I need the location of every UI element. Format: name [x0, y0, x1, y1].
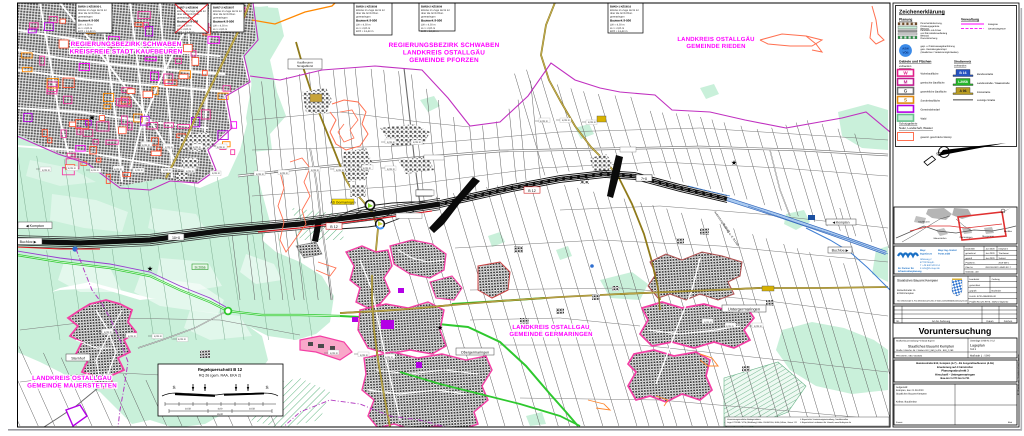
svg-text:S: S: [172, 385, 175, 390]
svg-text:und Fahrstreifenaufteilung: und Fahrstreifenaufteilung: [921, 32, 948, 35]
svg-text:M: M: [904, 80, 908, 85]
svg-text:4,06 m: 4,06 m: [360, 354, 368, 357]
svg-text:geprüft: geprüft: [970, 289, 977, 292]
svg-text:Format: Format: [896, 421, 903, 424]
svg-text:4,06 m: 4,06 m: [217, 146, 225, 149]
svg-text:4,06 m: 4,06 m: [754, 325, 762, 328]
svg-text:RQ 26 (gem. RAA, EKA 2): RQ 26 (gem. RAA, EKA 2): [199, 374, 241, 378]
svg-text:AS Germaringen: AS Germaringen: [330, 201, 355, 205]
svg-text:Wald: Wald: [921, 117, 927, 120]
svg-text:© Bayerisches Landesamt für Um: © Bayerisches Landesamt für Umwelt, www.…: [800, 421, 852, 424]
svg-text:St 2056: St 2056: [195, 265, 206, 269]
svg-text:4,06 m: 4,06 m: [142, 144, 150, 147]
svg-text:Kaufbeuren: Kaufbeuren: [918, 220, 930, 223]
svg-text:Nachtrder: Nachtrder: [992, 289, 1002, 292]
svg-text:Gemeindegrenze: Gemeindegrenze: [988, 28, 1006, 31]
svg-text:4,06 m: 4,06 m: [311, 169, 319, 172]
svg-text:4,06 m: 4,06 m: [704, 321, 712, 324]
svg-text:Bundesstraße B12, Kempten (A 7: Bundesstraße B12, Kempten (A 7) - AS Jen…: [916, 362, 994, 365]
svg-text:gewerbliche Baufläche: gewerbliche Baufläche: [921, 90, 948, 93]
svg-text:LANDKREIS OSTALLGAU: LANDKREIS OSTALLGAU: [512, 324, 589, 331]
svg-text:Erhebungsgerüste: Erhebungsgerüste: [921, 25, 940, 28]
svg-text:Unterlage 1946-N: 0 12: Unterlage 1946-N: 0 12: [970, 340, 996, 343]
svg-text:4,06 m: 4,06 m: [387, 141, 395, 144]
svg-text:A 96: A 96: [959, 89, 966, 93]
svg-text:4,06 m: 4,06 m: [413, 141, 421, 144]
svg-text:Teil 2: Teil 2: [970, 348, 977, 351]
svg-text:Obergermar.: Obergermar.: [982, 235, 995, 238]
svg-text:Kellner, Baudirektor: Kellner, Baudirektor: [896, 401, 917, 404]
svg-text:Maßstab 1 : 5000: Maßstab 1 : 5000: [970, 354, 991, 357]
svg-text:Bau-km 0+070 bis 9+721: Bau-km 0+070 bis 9+721: [941, 377, 971, 380]
svg-text:Juni 2020: Juni 2020: [986, 257, 996, 260]
svg-text:gepl. u. Erlebnisswegüberführu: gepl. u. Erlebnisswegüberführung: [921, 45, 956, 48]
svg-text:gesetzl. geschützter Biotop: gesetzl. geschützter Biotop: [921, 136, 953, 139]
svg-text:© Bayerische Vermessungsverwal: © Bayerische Vermessungsverwaltung, Nach…: [800, 418, 848, 421]
svg-text:S: S: [904, 98, 907, 103]
svg-text:gemischte Baufläche: gemischte Baufläche: [921, 81, 946, 84]
svg-text:Fahrbahn mit Achse: Fahrbahn mit Achse: [921, 29, 942, 32]
svg-text:Staatliches Bauamt Kempten: Staatliches Bauamt Kempten: [897, 279, 938, 283]
svg-text:Einschnittsböschung,: Einschnittsböschung,: [921, 22, 943, 25]
svg-text:Straßenbauverwaltung Freistaat: Straßenbauverwaltung Freistaat Bayern: [896, 340, 935, 343]
svg-text:E info@ib-mayr.de: E info@ib-mayr.de: [920, 267, 940, 270]
svg-text:Lageplan: Lageplan: [970, 344, 985, 348]
svg-text:Nr.: Nr.: [896, 320, 899, 323]
svg-text:2019-009-1: 2019-009-1: [999, 261, 1010, 264]
svg-text:4,06 m: 4,06 m: [726, 325, 734, 328]
svg-text:Wohnbaufläche: Wohnbaufläche: [921, 72, 940, 75]
svg-text:Art der Änderung: Art der Änderung: [932, 320, 951, 323]
svg-text:VÖB: VÖB: [902, 51, 908, 55]
svg-text:4,06 m: 4,06 m: [540, 120, 548, 123]
svg-text:★: ★: [89, 114, 95, 122]
svg-text:Dammböschung: Dammböschung: [921, 37, 938, 40]
svg-text:Straßennetz: Straßennetz: [954, 60, 972, 64]
svg-text:B 12: B 12: [330, 225, 337, 229]
svg-text:4,06 m: 4,06 m: [154, 335, 162, 338]
svg-text:4,06 m: 4,06 m: [387, 168, 395, 171]
svg-text:Landesstraße / Staatsstraße: Landesstraße / Staatsstraße: [977, 82, 1010, 85]
svg-text:Natur, Landschaft, Wasser: Natur, Landschaft, Wasser: [899, 126, 933, 130]
svg-text:Neugablonz: Neugablonz: [297, 64, 314, 68]
svg-text:GEMEINDE GERMARINGEN: GEMEINDE GERMARINGEN: [509, 331, 592, 338]
svg-text:10,50: 10,50: [249, 408, 256, 411]
svg-text:vorhanden: vorhanden: [899, 65, 912, 68]
svg-text:G: G: [904, 89, 908, 94]
svg-text:Buchloe: Buchloe: [1004, 230, 1013, 233]
svg-text:L2058: L2058: [958, 80, 968, 84]
svg-text:10+0: 10+0: [172, 236, 180, 240]
svg-text:Tel. 0831/52143-0, Fax 0831/52: Tel. 0831/52143-0, Fax 0831/52143-1205, …: [897, 300, 968, 303]
svg-text:Diegmann: Diegmann: [999, 248, 1009, 251]
svg-text:Bauwerk 9-506: Bauwerk 9-506: [610, 19, 631, 23]
svg-text:Gebiete und Flächen: Gebiete und Flächen: [899, 60, 931, 64]
svg-text:Untergermaringen: Untergermaringen: [728, 306, 760, 311]
svg-text:bearbeitet: bearbeitet: [970, 278, 980, 281]
svg-text:4,06 m: 4,06 m: [135, 169, 143, 172]
svg-text:REGIERUNGSBEZIRK SCHWABEN: REGIERUNGSBEZIRK SCHWABEN: [389, 42, 500, 49]
svg-text:Buchloe ▶: Buchloe ▶: [832, 249, 849, 253]
svg-text:KREISFREIE STADT KAUFBEUREN: KREISFREIE STADT KAUFBEUREN: [70, 49, 183, 56]
svg-text:Germaringen: Germaringen: [960, 236, 974, 239]
svg-text:BrCl = 13,43 m: BrCl = 13,43 m: [78, 30, 95, 33]
svg-text:10,50: 10,50: [185, 408, 192, 411]
svg-text:Staatliches Bauamt Kempten: Staatliches Bauamt Kempten: [908, 345, 954, 349]
svg-text:4,06 m: 4,06 m: [68, 167, 76, 170]
svg-text:B 16: B 16: [959, 71, 966, 75]
svg-text:4,06 m: 4,06 m: [363, 167, 371, 170]
svg-text:gezeichnet: gezeichnet: [966, 252, 976, 255]
svg-text:Mauerstetten: Mauerstetten: [934, 237, 948, 240]
svg-text:4,06 m: 4,06 m: [128, 335, 136, 338]
svg-text:Staatliches Bauamt Kempten: Staatliches Bauamt Kempten: [896, 392, 928, 395]
svg-text:4,06 m: 4,06 m: [114, 168, 122, 171]
svg-text:4,06 m: 4,06 m: [385, 356, 393, 359]
svg-text:GEMEINDE MAUERSTETTEN: GEMEINDE MAUERSTETTEN: [27, 382, 117, 389]
svg-text:7+0: 7+0: [641, 177, 647, 181]
svg-text:Kreisstraße: Kreisstraße: [977, 91, 991, 94]
svg-text:Partn.mbB: Partn.mbB: [938, 253, 950, 256]
svg-text:Schutzgebiete: Schutzgebiete: [899, 122, 918, 126]
svg-text:4,06 m: 4,06 m: [336, 169, 344, 172]
svg-text:Verwaltung: Verwaltung: [961, 18, 979, 22]
svg-text:Plan-Nr.: Plan-Nr.: [966, 266, 974, 269]
svg-text:Kategorie: Kategorie: [988, 23, 999, 26]
svg-text:Gemeindebedarf: Gemeindebedarf: [921, 108, 941, 111]
svg-text:Datum: Datum: [986, 320, 993, 323]
svg-text:gezeichnet: gezeichnet: [970, 284, 981, 287]
svg-text:Juni 2020: Juni 2020: [986, 252, 996, 255]
svg-text:4,06 m: 4,06 m: [178, 338, 186, 341]
svg-text:GEMEINDE RIEDEN: GEMEINDE RIEDEN: [686, 43, 745, 50]
svg-text:Bauwerk 9-506: Bauwerk 9-506: [78, 19, 99, 23]
svg-text:Bauwerk 9-506: Bauwerk 9-506: [356, 19, 377, 23]
svg-text:BrCl = 13,43 m: BrCl = 13,43 m: [177, 31, 194, 34]
svg-text:bearbeitet: bearbeitet: [966, 248, 976, 251]
svg-text:4,06 m: 4,06 m: [91, 169, 99, 172]
svg-text:Zeichen: Zeichen: [1004, 320, 1013, 323]
svg-text:Bundesstraße: Bundesstraße: [977, 73, 994, 76]
svg-text:Lage: ETRS89 / UTM (Abbildung): Lage: ETRS89 / UTM (Abbildung) Höhe: DHH…: [727, 421, 798, 424]
svg-text:Schmid: Schmid: [999, 257, 1007, 260]
svg-text:4,06 m: 4,06 m: [562, 119, 570, 122]
svg-text:BrCl = 13,43 m: BrCl = 13,43 m: [421, 30, 438, 33]
svg-text:Regelquerschnitt B 12: Regelquerschnitt B 12: [198, 367, 243, 372]
svg-text:4,06 m: 4,06 m: [280, 172, 288, 175]
svg-text:★: ★: [147, 265, 153, 273]
svg-text:Projekt Ro.s25.7M-St. 10aKn.: Projekt Ro.s25.7M-St. 10aKn.t-bIgeznto: [970, 301, 1009, 304]
svg-text:LANDKREIS OSTALLGÄU: LANDKREIS OSTALLGÄU: [677, 35, 754, 43]
svg-text:Thanheiser: Thanheiser: [999, 252, 1010, 255]
svg-text:sonstige Straße: sonstige Straße: [977, 99, 996, 102]
svg-text:◀ Kempten: ◀ Kempten: [832, 221, 849, 225]
svg-text:Hirschzell - Untergermaringen: Hirschzell - Untergermaringen: [935, 372, 975, 376]
svg-text:Zeichenerklärung: Zeichenerklärung: [899, 10, 945, 16]
svg-text:BrCl = 13,43 m: BrCl = 13,43 m: [356, 30, 373, 33]
svg-text:Juni 2020: Juni 2020: [986, 248, 996, 251]
svg-text:4,06 m: 4,06 m: [165, 146, 173, 149]
svg-text:4,06 m: 4,06 m: [212, 172, 220, 175]
svg-text:BrCl = 13,43 m: BrCl = 13,43 m: [213, 31, 230, 34]
svg-text:Ingenieure: Ingenieure: [920, 253, 933, 256]
svg-text:87439 Kempten: 87439 Kempten: [897, 292, 915, 295]
svg-text:Buchloe ▶: Buchloe ▶: [20, 240, 37, 244]
svg-text:Zerdung: Zerdung: [992, 278, 1001, 281]
svg-text:4,06 m: 4,06 m: [588, 121, 596, 124]
svg-text:Vermessungsamtliche Basisgeoda: Vermessungsamtliche Basisgeodaten:: [727, 418, 761, 421]
svg-text:PROJIS-Nr.: 09171510026: PROJIS-Nr.: 09171510026: [896, 354, 923, 357]
svg-text:Planung: Planung: [899, 18, 912, 22]
svg-text:B12 Erweiterung - Voruntersuch: B12 Erweiterung - Voruntersuchung Lagepl…: [1017, 355, 1020, 395]
svg-text:4,06 m: 4,06 m: [330, 352, 338, 355]
svg-text:Hot-Nr. 9720.AB940026-00: Hot-Nr. 9720.AB940026-00: [970, 295, 997, 298]
svg-text:Maßstab...dwl: Maßstab...dwl: [966, 271, 979, 274]
svg-text:LANDKREIS OSTALLGÄU: LANDKREIS OSTALLGÄU: [403, 49, 485, 57]
svg-text:Bauwerk 9-506: Bauwerk 9-506: [421, 19, 442, 23]
svg-text:Projekt-Nr.: Projekt-Nr.: [966, 261, 976, 264]
svg-text:W: W: [903, 71, 908, 76]
svg-text:★: ★: [437, 324, 443, 332]
svg-text:4,06 m: 4,06 m: [163, 169, 171, 172]
svg-text:Blatt: Blatt: [1008, 421, 1012, 424]
svg-text:Voruntersuchung: Voruntersuchung: [919, 326, 992, 336]
svg-text:Sternhof: Sternhof: [71, 356, 85, 360]
svg-text:Infrastrukturplanung: Infrastrukturplanung: [898, 270, 922, 273]
svg-text:26,00: 26,00: [217, 413, 224, 416]
svg-text:S: S: [265, 385, 268, 390]
svg-text:4,06 m: 4,06 m: [256, 173, 264, 176]
svg-text:4,06 m: 4,06 m: [186, 170, 194, 173]
svg-text:4,06 m: 4,06 m: [193, 146, 201, 149]
svg-text:Obergermaringen: Obergermaringen: [461, 350, 489, 354]
svg-text:LANDKREIS OSTALLGAU: LANDKREIS OSTALLGAU: [32, 375, 112, 382]
svg-text:4,06 m: 4,06 m: [104, 331, 112, 334]
svg-text:gem. Gestaltungskonzept: gem. Gestaltungskonzept: [921, 48, 947, 51]
svg-text:GE0.019.002.1-PB03.017-7: GE0.019.002.1-PB03.017-7: [986, 266, 1012, 269]
svg-text:B 12: B 12: [528, 189, 535, 193]
svg-text:REGIERUNGSBEZIRK SCHWABEN: REGIERUNGSBEZIRK SCHWABEN: [71, 41, 182, 48]
svg-text:Bestand: Bestand: [921, 34, 930, 37]
svg-text:Bauwerk 9-506: Bauwerk 9-506: [213, 20, 234, 24]
svg-text:Sonderbaufläche: Sonderbaufläche: [921, 99, 941, 102]
svg-text:Straße / Abschn.-Nr. / Station: Straße / Abschn.-Nr. / Station: B12_960_…: [896, 349, 954, 352]
svg-text:BrCl = 13,43 m: BrCl = 13,43 m: [610, 30, 627, 33]
svg-text:(Staatlichen / Verkehrsmöglich: (Staatlichen / Verkehrsmöglichkeiten): [921, 51, 959, 54]
svg-text:4,00: 4,00: [218, 408, 223, 411]
svg-text:GEMEINDE PFORZEN: GEMEINDE PFORZEN: [409, 57, 479, 64]
svg-text:geprüft: geprüft: [966, 257, 973, 260]
svg-text:4,06 m: 4,06 m: [42, 169, 50, 172]
svg-text:★: ★: [731, 159, 737, 167]
svg-text:◀ Kempten: ◀ Kempten: [26, 224, 44, 228]
svg-text:vorhanden: vorhanden: [954, 65, 967, 68]
